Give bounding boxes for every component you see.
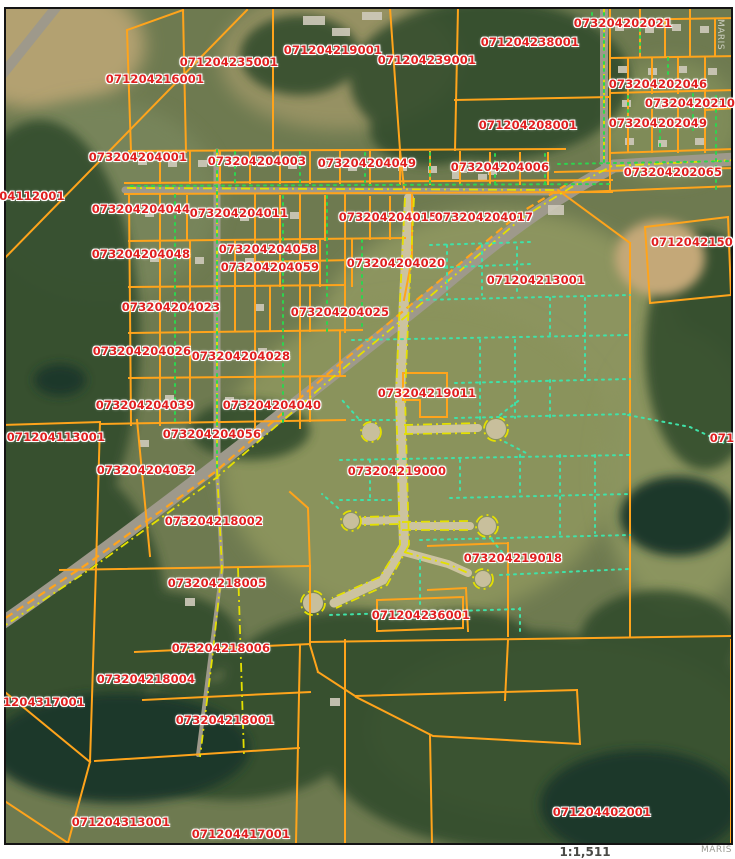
map-scale-label: 1:1,511: [540, 845, 630, 859]
maris-watermark-bottom: MARIS: [701, 845, 732, 855]
aerial-parcel-map[interactable]: MARIS: [4, 7, 733, 845]
aerial-imagery: [6, 9, 731, 843]
page: { "map": { "scale_label": "1:1,511", "wa…: [0, 0, 735, 855]
maris-watermark-side: MARIS: [715, 19, 725, 50]
